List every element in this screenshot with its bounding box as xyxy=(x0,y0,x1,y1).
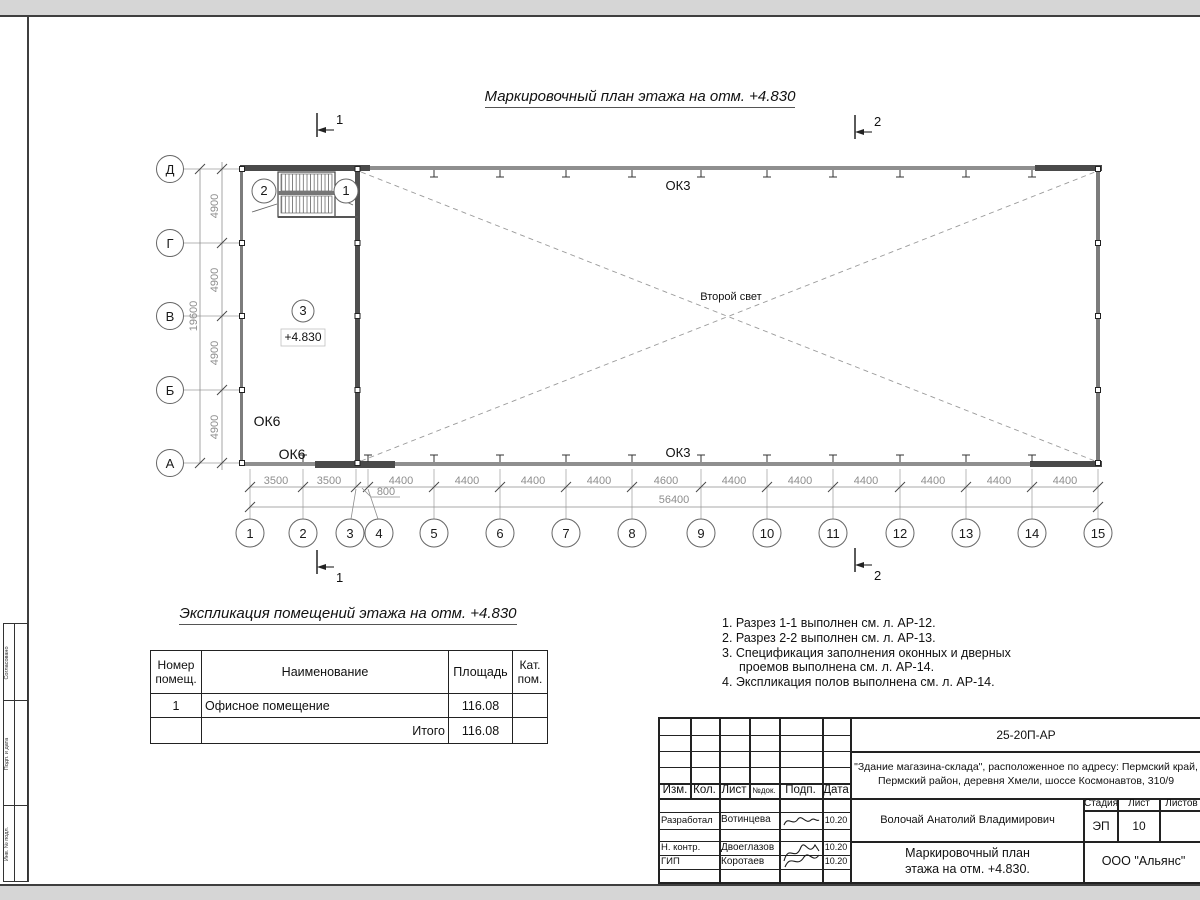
drawing-name-line-2: этажа на отм. +4.830. xyxy=(905,862,1030,878)
col-axis: 5 xyxy=(430,526,437,541)
sheets-label: Листов xyxy=(1161,798,1200,810)
doc-code: 25-20П-АР xyxy=(850,719,1200,751)
ok6-lower-label: ОК6 xyxy=(279,446,306,462)
row-axis-b: Б xyxy=(166,383,175,398)
col-axis: 8 xyxy=(628,526,635,541)
col-header-area: Площадь xyxy=(449,651,513,694)
section-number: 2 xyxy=(874,568,881,583)
elevation-label: +4.830 xyxy=(284,330,321,344)
signature-developer xyxy=(780,812,822,829)
dim-span: 4400 xyxy=(722,475,746,487)
note-item: 3. Спецификация заполнения оконных и две… xyxy=(722,646,1034,676)
col-list: Лист xyxy=(719,783,749,798)
door-mark-2: 2 xyxy=(260,183,267,198)
floor-plan: 2 1 3 +4.830 ОК3 ОК3 ОК6 ОК6 Второй свет… xyxy=(0,0,1200,640)
col-axis: 10 xyxy=(760,526,774,541)
side-stamp-label: Подп. и дата xyxy=(4,735,12,773)
side-stamp-box-2: Подп. и дата xyxy=(3,700,28,807)
col-header-name: Наименование xyxy=(202,651,449,694)
dim-span: 4400 xyxy=(854,475,878,487)
col-podp: Подп. xyxy=(779,783,822,798)
col-axis: 6 xyxy=(496,526,503,541)
note-item: 1. Разрез 1-1 выполнен см. л. АР-12. xyxy=(722,616,1034,631)
dim-span: 4400 xyxy=(921,475,945,487)
note-item: 4. Экспликация полов выполнена см. л. АР… xyxy=(722,675,1034,690)
dim-span: 4400 xyxy=(389,475,413,487)
wall-bottom-solid-right xyxy=(1030,461,1102,467)
room-number-cell: 1 xyxy=(151,694,202,718)
drawing-name-line-1: Маркировочный план xyxy=(905,846,1030,862)
stage-value: ЭП xyxy=(1085,812,1117,840)
side-stamp-label: Инв. № подл. xyxy=(4,825,12,863)
section-mark-2-top xyxy=(855,115,872,139)
company-name: ООО "Альянс" xyxy=(1085,843,1200,881)
dim-span: 4400 xyxy=(521,475,545,487)
column-tees-top xyxy=(430,170,1036,177)
dim-total-height: 19600 xyxy=(188,301,200,332)
title-block: 25-20П-АР "Здание магазина-склада", расп… xyxy=(658,717,1200,884)
dim-span: 4400 xyxy=(788,475,812,487)
project-line-1: "Здание магазина-склада", расположенное … xyxy=(854,761,1198,774)
room-table: Номер помещ. Наименование Площадь Кат. п… xyxy=(150,650,548,744)
section-mark-2-bottom xyxy=(855,548,872,572)
stair-flight-upper xyxy=(281,174,332,191)
date-gip: 10.20 xyxy=(822,855,850,869)
room-table-header: Номер помещ. Наименование Площадь Кат. п… xyxy=(151,651,548,694)
section-mark-1-top xyxy=(317,113,334,137)
room-number: 3 xyxy=(299,303,306,318)
dim-4900-2: 4900 xyxy=(209,268,221,292)
stair-flight-lower xyxy=(281,196,332,213)
section-number: 2 xyxy=(874,114,881,129)
dim-4900-1: 4900 xyxy=(209,194,221,218)
col-axis: 11 xyxy=(826,526,840,541)
side-stamp-divider xyxy=(14,701,15,806)
total-area-cell: 116.08 xyxy=(449,718,513,744)
dim-span: 3500 xyxy=(317,475,341,487)
row-axis-v: В xyxy=(166,309,175,324)
room-name-cell: Офисное помещение xyxy=(202,694,449,718)
col-izm: Изм. xyxy=(660,783,690,798)
table-total-row: Итого 116.08 xyxy=(151,718,548,744)
role-developer: Разработал xyxy=(661,812,718,829)
role-gip: ГИП xyxy=(661,855,718,869)
dim-span: 4400 xyxy=(587,475,611,487)
dim-4900-3: 4900 xyxy=(209,341,221,365)
project-description: "Здание магазина-склада", расположенное … xyxy=(850,751,1200,798)
col-axis: 9 xyxy=(697,526,704,541)
col-axis: 12 xyxy=(893,526,907,541)
role-ncontrol: Н. контр. xyxy=(661,841,718,855)
dim-span: 4400 xyxy=(987,475,1011,487)
col-axis: 13 xyxy=(959,526,973,541)
ok3-top-label: ОК3 xyxy=(666,178,691,193)
stair-landing xyxy=(278,191,335,195)
col-axis: 14 xyxy=(1025,526,1039,541)
col-axis-circles xyxy=(236,519,1112,547)
name-ncontrol: Двоеглазов xyxy=(721,841,778,855)
chief-name: Волочай Анатолий Владимирович xyxy=(852,800,1083,841)
side-stamp-box-3: Инв. № подл. xyxy=(3,805,28,882)
col-kol: Кол. xyxy=(690,783,719,798)
door-mark-1: 1 xyxy=(342,183,349,198)
col-axis: 7 xyxy=(562,526,569,541)
section-number: 1 xyxy=(336,112,343,127)
dim-4900-4: 4900 xyxy=(209,415,221,439)
table-row: 1 Офисное помещение 116.08 xyxy=(151,694,548,718)
wall-top-solid-right xyxy=(1035,165,1102,171)
dim-span: 4400 xyxy=(455,475,479,487)
col-axis: 1 xyxy=(246,526,253,541)
ok6-upper-label: ОК6 xyxy=(254,413,281,429)
second-light-diagonals xyxy=(361,172,1095,461)
room-category-cell xyxy=(513,694,548,718)
sheet-number: 10 xyxy=(1119,812,1159,840)
date-ncontrol: 10.20 xyxy=(822,841,850,855)
sheet-label: Лист xyxy=(1119,798,1159,810)
col-axis: 15 xyxy=(1091,526,1105,541)
col-data: Дата xyxy=(822,783,850,798)
row-axis-g: Г xyxy=(166,236,173,251)
ok3-bottom-label: ОК3 xyxy=(666,445,691,460)
name-gip: Коротаев xyxy=(721,855,778,869)
section-mark-1-bottom xyxy=(317,550,334,574)
col-axis: 3 xyxy=(346,526,353,541)
dim-span: 3500 xyxy=(264,475,288,487)
side-stamp-label: Согласовано xyxy=(4,644,12,682)
col-axis: 4 xyxy=(375,526,382,541)
room-table-title: Экспликация помещений этажа на отм. +4.8… xyxy=(158,605,538,625)
date-developer: 10.20 xyxy=(822,812,850,829)
row-axis-a: А xyxy=(166,456,175,471)
drawing-viewer: { "title": "Маркировочный план этажа на … xyxy=(0,0,1200,900)
side-stamp-divider xyxy=(14,806,15,881)
stage-label: Стадия xyxy=(1085,798,1117,810)
col-ndoc: №док. xyxy=(749,783,779,798)
column-markers xyxy=(240,167,1101,466)
section-number: 1 xyxy=(336,570,343,585)
wall-top-solid-left xyxy=(240,165,370,171)
project-line-2: Пермский район, деревня Хмели, шоссе Кос… xyxy=(878,775,1174,788)
dim-span-800: 800 xyxy=(377,486,395,498)
note-item: 2. Разрез 2-2 выполнен см. л. АР-13. xyxy=(722,631,1034,646)
col-header-category: Кат. пом. xyxy=(513,651,548,694)
second-light-label: Второй свет xyxy=(700,291,761,303)
dim-span: 4600 xyxy=(654,475,678,487)
col-header-number: Номер помещ. xyxy=(151,651,202,694)
dim-span: 4400 xyxy=(1053,475,1077,487)
signature-ncontrol-gip xyxy=(779,837,823,871)
col-axis: 2 xyxy=(299,526,306,541)
row-axis-d: Д xyxy=(166,162,175,177)
name-developer: Вотинцева xyxy=(721,812,778,829)
notes-list: 1. Разрез 1-1 выполнен см. л. АР-12. 2. … xyxy=(722,616,1034,690)
total-label-cell: Итого xyxy=(202,718,449,744)
dim-total-width: 56400 xyxy=(659,494,690,506)
room-area-cell: 116.08 xyxy=(449,694,513,718)
drawing-name: Маркировочный план этажа на отм. +4.830. xyxy=(852,843,1083,881)
